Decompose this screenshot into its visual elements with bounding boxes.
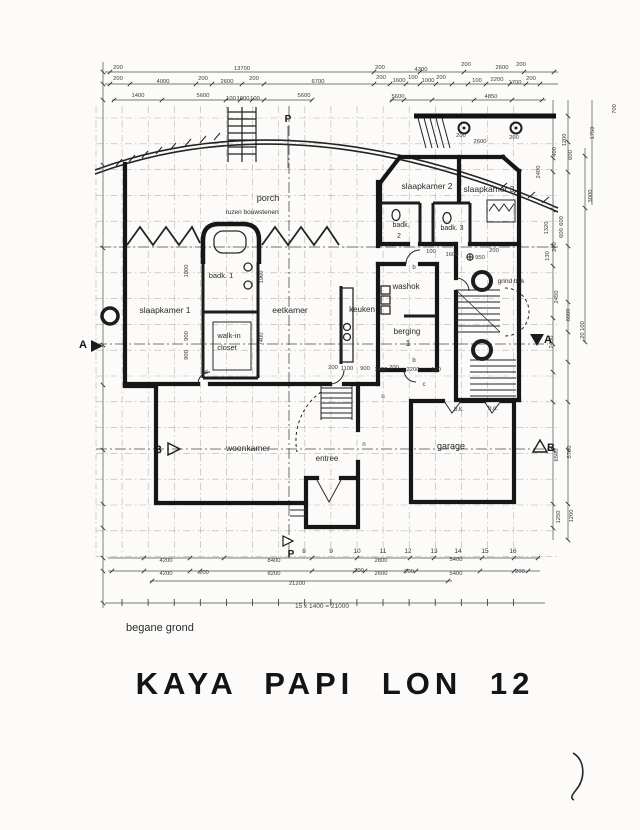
dimension-label: 600 bbox=[559, 216, 565, 226]
section-b-triangle bbox=[533, 440, 547, 452]
dimension-label: 200 bbox=[376, 75, 386, 81]
kitchen-sink bbox=[344, 334, 351, 341]
room-label: slaapkamer 1 bbox=[139, 305, 190, 315]
wardrobe bbox=[487, 200, 515, 222]
bathtub bbox=[214, 231, 246, 253]
column bbox=[102, 308, 118, 324]
dimension-label: 200 bbox=[249, 76, 259, 82]
dimension-label: 200 bbox=[199, 570, 209, 576]
room-label: 2 bbox=[397, 233, 401, 240]
walls bbox=[125, 157, 519, 527]
dimension-label: 1100 bbox=[341, 366, 353, 372]
room-label: entree bbox=[316, 454, 339, 463]
dimension-label: 1600 bbox=[393, 78, 406, 84]
dimension-label: 100 bbox=[408, 75, 418, 81]
dimension-label: 100 bbox=[426, 249, 436, 255]
floorplan-drawing: porchruzen bouwstenenslaapkamer 1badk. 1… bbox=[0, 0, 640, 830]
dimension-label: 2200 bbox=[407, 367, 420, 373]
dimension-label: 1200 bbox=[562, 134, 568, 147]
floor-label: begane grond bbox=[126, 622, 194, 634]
dimension-label: 2800 bbox=[375, 558, 388, 564]
dimension-label: 1600 bbox=[446, 252, 459, 258]
dimension-label: 5400 bbox=[450, 557, 463, 563]
dimension-label: 5400 bbox=[450, 571, 463, 577]
column bbox=[473, 272, 491, 290]
dimension-label: 5600 bbox=[298, 93, 311, 99]
toilet bbox=[244, 281, 252, 289]
dimension-label: 100 bbox=[431, 367, 441, 373]
door-tag: b bbox=[412, 265, 416, 271]
dimension-label: 1750 bbox=[590, 127, 596, 140]
washer bbox=[381, 286, 390, 294]
dimension-label: 100 bbox=[226, 96, 236, 102]
dimension-label: 200 bbox=[461, 62, 471, 68]
room-label: washok bbox=[391, 282, 420, 291]
room-label: b.k. bbox=[454, 407, 464, 413]
dimension-label: 5600 bbox=[392, 94, 405, 100]
room-label: b.c. bbox=[488, 406, 498, 412]
room-labels: porchruzen bouwstenenslaapkamer 1badk. 1… bbox=[139, 181, 525, 463]
door-tag: d bbox=[204, 370, 207, 376]
dimension-label: 2600 bbox=[221, 79, 234, 85]
grid-number: 12 bbox=[404, 548, 412, 555]
dimension-label: 200 bbox=[436, 75, 446, 81]
scale-note: 15 x 1400 = 21000 bbox=[295, 603, 349, 610]
dimension-label: 8200 bbox=[268, 571, 281, 577]
column-center-dot bbox=[515, 127, 518, 130]
p-marker-triangle bbox=[283, 536, 293, 546]
dimension-label: 200 bbox=[516, 62, 526, 68]
dimension-label: 900 bbox=[184, 350, 190, 360]
room-label: walk-in bbox=[216, 331, 240, 340]
grid-number: 9 bbox=[329, 548, 333, 555]
washer bbox=[381, 306, 390, 314]
door-tag: n bbox=[362, 442, 365, 448]
room-label: badk. bbox=[392, 222, 409, 229]
room-label: badk. 3 bbox=[441, 225, 464, 232]
dimension-label: 600 bbox=[559, 228, 565, 238]
dimension-label: 2600 bbox=[375, 571, 388, 577]
room-label: grind bak bbox=[498, 278, 525, 285]
room-label: keuken bbox=[349, 305, 375, 314]
staircase-right-lower bbox=[470, 360, 516, 396]
dimension-label: 200 bbox=[552, 242, 558, 252]
room-label: slaapkamer 3 bbox=[463, 184, 514, 194]
dimension-label: 4300 bbox=[415, 67, 428, 73]
zigzag-screen-wall bbox=[127, 227, 339, 245]
door-tags: dbbcnn bbox=[204, 265, 425, 448]
dimension-label: 5600 bbox=[197, 93, 210, 99]
dimension-label: 200 bbox=[375, 65, 385, 71]
washer bbox=[381, 296, 390, 304]
toilet bbox=[392, 210, 400, 221]
dimension-label: 200 bbox=[198, 76, 208, 82]
dimension-label: 900 bbox=[360, 366, 370, 372]
scanned-floorplan-page: porchruzen bouwstenenslaapkamer 1badk. 1… bbox=[0, 0, 640, 830]
dimension-label: 200 bbox=[526, 76, 536, 82]
dimension-label: 900 bbox=[184, 331, 190, 341]
dimension-label: 100 bbox=[250, 96, 260, 102]
section-letter: A bbox=[544, 334, 552, 346]
column-center-dot bbox=[463, 127, 466, 130]
dimension-label: 13700 bbox=[234, 66, 250, 72]
room-label: badk. 1 bbox=[209, 271, 234, 280]
dimension-label: 2400 bbox=[536, 166, 542, 179]
sink bbox=[244, 263, 252, 271]
grid-number: 14 bbox=[454, 548, 462, 555]
dimension-label: 2600 bbox=[496, 65, 509, 71]
grid-number: 8 bbox=[302, 548, 306, 555]
level-marker bbox=[467, 254, 473, 260]
room-label: 1 bbox=[406, 339, 411, 348]
dimension-label: 4850 bbox=[485, 94, 498, 100]
dimension-label: 1250 bbox=[556, 511, 562, 524]
room-label: eetkamer bbox=[272, 305, 308, 315]
entree-door bbox=[317, 480, 341, 502]
dimension-label: 4200 bbox=[160, 571, 173, 577]
dimension-label: 200 bbox=[113, 76, 123, 82]
dimension-label: 5700 bbox=[567, 446, 573, 459]
dimension-label: 4000 bbox=[157, 79, 170, 85]
dimension-label: 1200 bbox=[569, 510, 575, 523]
dimension-label: 200 bbox=[509, 135, 519, 141]
dimension-label: 200 bbox=[389, 365, 399, 371]
section-letter: A bbox=[79, 339, 87, 351]
dimension-label: 2450 bbox=[554, 291, 560, 304]
dimension-label: 1000 bbox=[184, 265, 190, 278]
dimension-label: 950 bbox=[475, 255, 485, 261]
room-label: garage bbox=[437, 441, 465, 451]
grid-number: 16 bbox=[509, 548, 517, 555]
room-label: porch bbox=[257, 193, 280, 203]
dimension-label: 2600 bbox=[474, 139, 487, 145]
inner-walls bbox=[203, 203, 470, 378]
room-label: woonkamer bbox=[225, 443, 270, 453]
dimension-label: 3000 bbox=[588, 190, 594, 203]
section-letter: P bbox=[285, 114, 292, 125]
dimension-label: 100 bbox=[472, 78, 482, 84]
pen-mark bbox=[572, 753, 583, 800]
section-letter: B bbox=[154, 444, 162, 456]
dimension-label: 1700 bbox=[509, 80, 522, 86]
dimension-label: 21200 bbox=[289, 581, 305, 587]
bathroom-dome-wall bbox=[203, 224, 259, 264]
dimension-label: 400 bbox=[552, 147, 558, 157]
door-tag: n bbox=[381, 394, 384, 400]
dimension-label: 20 100 bbox=[580, 321, 586, 339]
dimension-label: 1000 bbox=[422, 78, 435, 84]
dimension-label: 600 bbox=[568, 150, 574, 160]
room-label: ruzen bouwstenen bbox=[225, 209, 279, 216]
dimension-label: 200 bbox=[328, 365, 338, 371]
dimension-label: 1450 bbox=[375, 367, 388, 373]
room-label: slaapkamer 2 bbox=[401, 181, 452, 191]
dimension-label: 200 bbox=[404, 569, 414, 575]
dimension-label: 200 bbox=[456, 133, 466, 139]
drawing-title: KAYA PAPI LON 12 bbox=[136, 666, 535, 701]
room-label: berging bbox=[394, 327, 421, 336]
staircase-top-left bbox=[228, 107, 256, 162]
dimension-label: 2200 bbox=[491, 77, 504, 83]
dimension-label: 8400 bbox=[268, 558, 281, 564]
toilet bbox=[443, 213, 451, 224]
grid-numbers: 8910111213141516 bbox=[302, 548, 517, 555]
dimension-label: 200 bbox=[354, 568, 364, 574]
dimension-label: 1960 bbox=[259, 271, 265, 284]
section-letters: AABBPP bbox=[79, 114, 555, 560]
dimension-label: 200 bbox=[113, 65, 123, 71]
dimension-label: 1320 bbox=[544, 222, 550, 235]
section-letter: B bbox=[547, 442, 555, 454]
grid-number: 13 bbox=[430, 548, 438, 555]
room-label: closet bbox=[217, 343, 238, 352]
dimension-label: 4200 bbox=[160, 558, 173, 564]
dimension-label: 6700 bbox=[312, 79, 325, 85]
dimension-label: 200 bbox=[489, 248, 499, 254]
entry-steps bbox=[290, 510, 306, 516]
dimension-label: 1000 bbox=[237, 96, 250, 102]
dimension-label: 700 bbox=[612, 104, 618, 114]
section-letter: P bbox=[288, 549, 295, 560]
grid-number: 15 bbox=[481, 548, 489, 555]
grid-number: 10 bbox=[353, 548, 361, 555]
door-tag: b bbox=[412, 358, 416, 364]
grid-number: 11 bbox=[380, 548, 387, 555]
door-tag: c bbox=[423, 382, 426, 388]
wardrobe-rail bbox=[489, 204, 514, 211]
staircase-entree bbox=[296, 386, 352, 452]
dimension-label: 200 bbox=[515, 569, 525, 575]
dimension-label: 1400 bbox=[132, 93, 145, 99]
dimension-label: 130 bbox=[545, 251, 551, 261]
dimension-label: 8000 bbox=[566, 309, 572, 322]
dimension-label: 7400 bbox=[259, 333, 265, 346]
